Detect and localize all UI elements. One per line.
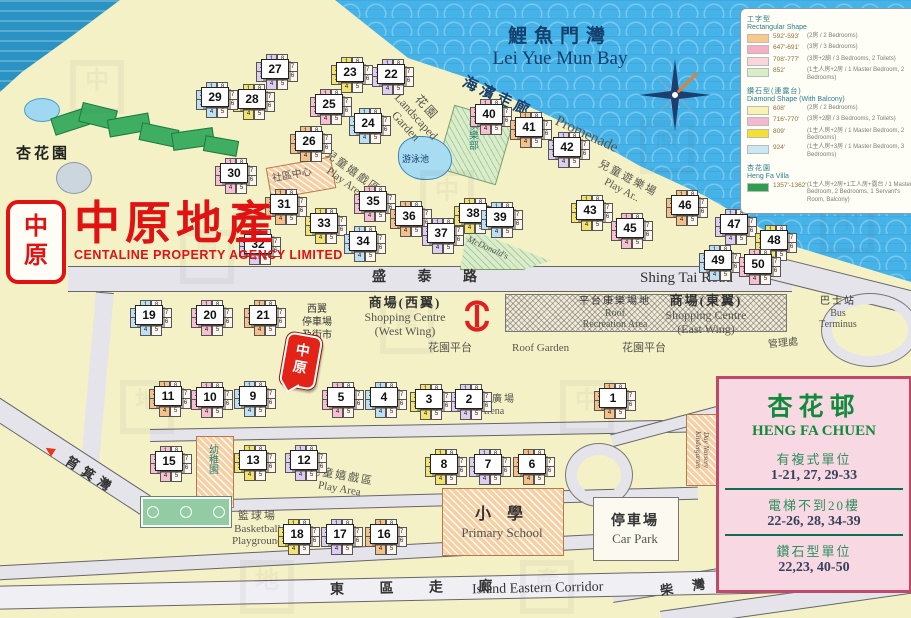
roof-garden-en-label: Roof Garden bbox=[512, 342, 569, 355]
legend-section: 鑽石型(連露台)Diamond Shape (With Balcony)608'… bbox=[747, 86, 911, 159]
tower-number: 10 bbox=[196, 387, 224, 407]
tower-number: 2 bbox=[455, 389, 483, 409]
tower-number: 29 bbox=[201, 87, 229, 107]
tower-unit: 5 bbox=[534, 474, 545, 485]
legend-row: 1357'-1362'(1主人房+2房+1工人房+露台 / 1 Master B… bbox=[747, 182, 911, 205]
bus-terminus-label: 巴士站 Bus Terminus bbox=[808, 296, 868, 331]
tower-number: 41 bbox=[515, 117, 543, 137]
roof-garden-west-label: 花園平台 bbox=[428, 342, 472, 355]
villa-building bbox=[203, 135, 239, 157]
centaline-seal-icon: 中原 bbox=[6, 200, 66, 284]
legend-swatch bbox=[747, 45, 769, 54]
tower-unit: 5 bbox=[431, 409, 442, 420]
tower-number: 1 bbox=[599, 388, 627, 408]
legend-area: 809' bbox=[773, 128, 807, 135]
legend-area: 592'-593' bbox=[773, 33, 807, 40]
info-row: 鑽石型單位22,23, 40-50 bbox=[725, 534, 903, 580]
tower-number: 25 bbox=[315, 94, 343, 114]
tower-unit: 5 bbox=[311, 151, 322, 162]
tower-unit: 4 bbox=[749, 274, 760, 285]
tower-unit: 4 bbox=[400, 226, 411, 237]
tower-unit: 5 bbox=[471, 409, 482, 420]
legend-section-title-en: Diamond Shape (With Balcony) bbox=[747, 96, 911, 103]
legend-swatch bbox=[747, 183, 769, 192]
tower-unit: 4 bbox=[341, 82, 352, 93]
tower-number: 5 bbox=[327, 387, 355, 407]
tower-unit: 4 bbox=[254, 325, 265, 336]
legend-desc: (1主人房+2房 / 1 Master Bedroom, 2 Bedrooms) bbox=[807, 67, 911, 82]
legend-area: 852' bbox=[773, 67, 807, 74]
tower-unit: 5 bbox=[299, 544, 310, 555]
tower-unit: 5 bbox=[254, 109, 265, 120]
tower-unit: 5 bbox=[736, 234, 747, 245]
tower-unit: 4 bbox=[460, 409, 471, 420]
tower-unit: 5 bbox=[306, 470, 317, 481]
tower-unit: 4 bbox=[676, 215, 687, 226]
legend-area: 924' bbox=[773, 144, 807, 151]
shopping-east-label: 商場(東翼) Shopping Centre (East Wing) bbox=[646, 294, 766, 337]
tower-unit: 4 bbox=[320, 114, 331, 125]
villa-label: 杏花園 bbox=[16, 146, 70, 163]
basketball-label: 籃球場 Basketball Playground bbox=[232, 510, 283, 548]
legend-row: 924'(1主人房+3房 / 1 Master Bedroom, 3 Bedro… bbox=[747, 144, 911, 159]
legend-swatch bbox=[747, 57, 769, 66]
tower-number: 12 bbox=[290, 450, 318, 470]
tower-number: 48 bbox=[760, 230, 788, 250]
tower-unit: 4 bbox=[243, 109, 254, 120]
villa-pond-gray bbox=[56, 162, 92, 194]
swimming-pool-label: 游泳池 bbox=[402, 154, 429, 164]
tower-unit: 5 bbox=[265, 325, 276, 336]
tower-number: 21 bbox=[249, 305, 277, 325]
tower-unit: 5 bbox=[217, 107, 228, 118]
tower-unit: 4 bbox=[160, 471, 171, 482]
tower-number: 49 bbox=[704, 250, 732, 270]
tower-unit: 4 bbox=[432, 243, 443, 254]
legend-area: 1357'-1362' bbox=[773, 182, 807, 189]
legend-desc: (1主人房+2房 / 1 Master Bedroom, 2 Bedrooms) bbox=[807, 128, 911, 143]
tower-number: 18 bbox=[283, 524, 311, 544]
info-row-label: 鑽石型單位 bbox=[725, 541, 903, 560]
legend-swatch bbox=[747, 129, 769, 138]
tower-unit: 5 bbox=[277, 79, 288, 90]
tower-unit: 5 bbox=[171, 471, 182, 482]
tower-unit: 4 bbox=[479, 474, 490, 485]
tower-unit: 5 bbox=[375, 211, 386, 222]
tower-unit: 5 bbox=[386, 544, 397, 555]
tower-unit: 5 bbox=[490, 474, 501, 485]
tower-unit: 5 bbox=[592, 220, 603, 231]
tower-number: 30 bbox=[220, 163, 248, 183]
legend-area: 716'-770' bbox=[773, 116, 807, 123]
tower-unit: 4 bbox=[140, 325, 151, 336]
tower-unit: 5 bbox=[343, 407, 354, 418]
tower-unit: 4 bbox=[364, 211, 375, 222]
tower-unit: 4 bbox=[621, 238, 632, 249]
tower-unit: 5 bbox=[370, 133, 381, 144]
management-office-label: 管理處 bbox=[767, 336, 798, 351]
tower-unit: 4 bbox=[201, 407, 212, 418]
tower-unit: 5 bbox=[491, 124, 502, 135]
tower-unit: 5 bbox=[632, 238, 643, 249]
carpark-label: 停車場 Car Park bbox=[599, 512, 671, 549]
tower-unit: 4 bbox=[480, 124, 491, 135]
tower-number: 45 bbox=[616, 218, 644, 238]
tower-number: 13 bbox=[239, 450, 267, 470]
tower-unit: 4 bbox=[382, 84, 393, 95]
tower-unit: 4 bbox=[464, 223, 475, 234]
legend-desc: (3房 / 3 Bedrooms) bbox=[807, 44, 858, 52]
tower-unit: 5 bbox=[342, 544, 353, 555]
tower-unit: 4 bbox=[201, 325, 212, 336]
bay-name-zh: 鯉魚門灣 bbox=[480, 26, 640, 48]
kindergarten-label: 幼稚園 bbox=[206, 444, 218, 474]
legend-row: 708'-777'(3房+2廁 / 3 Bedrooms, 2 Toilets) bbox=[747, 56, 911, 66]
legend-desc: (2房 / 2 Bedrooms) bbox=[807, 33, 858, 41]
tower-unit: 4 bbox=[375, 544, 386, 555]
estate-map: 鯉魚門灣 Lei Yue Mun Bay 海 濱 走 廊 Promenade 盛… bbox=[0, 0, 911, 618]
legend-row: 716'-770'(3房+2廁 / 3 Bedrooms, 2 Toilets) bbox=[747, 116, 911, 126]
legend-area: 647'-691' bbox=[773, 44, 807, 51]
info-row-value: 22,23, 40-50 bbox=[725, 560, 903, 576]
tower-unit: 4 bbox=[359, 133, 370, 144]
shing-tai-road-zh: 盛 泰 路 bbox=[372, 270, 491, 286]
tower-unit: 5 bbox=[255, 470, 266, 481]
legend-section-title-zh: 鑽石型(連露台) bbox=[747, 86, 911, 96]
tower-unit: 4 bbox=[159, 406, 170, 417]
tower-unit: 4 bbox=[523, 474, 534, 485]
tower-unit: 5 bbox=[386, 407, 397, 418]
tower-number: 8 bbox=[430, 454, 458, 474]
tower-unit: 4 bbox=[558, 157, 569, 168]
legend-section: 杏花園Heng Fa Villa1357'-1362'(1主人房+2房+1工人房… bbox=[747, 163, 911, 204]
tower-unit: 5 bbox=[502, 227, 513, 238]
tower-number: 20 bbox=[196, 305, 224, 325]
info-row-label: 有複式單位 bbox=[725, 449, 903, 468]
tower-unit: 4 bbox=[266, 79, 277, 90]
info-row: 有複式單位1-21, 27, 29-33 bbox=[725, 444, 903, 488]
tower-unit: 5 bbox=[212, 407, 223, 418]
tower-number: 11 bbox=[154, 386, 182, 406]
tower-number: 28 bbox=[238, 89, 266, 109]
legend-desc: (3房+2廁 / 3 Bedrooms, 2 Toilets) bbox=[807, 116, 896, 124]
tower-unit: 5 bbox=[352, 82, 363, 93]
tower-number: 50 bbox=[744, 254, 772, 274]
tower-unit: 5 bbox=[151, 325, 162, 336]
legend-row: 852'(1主人房+2房 / 1 Master Bedroom, 2 Bedro… bbox=[747, 67, 911, 82]
tower-unit: 4 bbox=[604, 408, 615, 419]
legend: 工字型Rectangular Shape592'-593'(2房 / 2 Bed… bbox=[740, 8, 911, 214]
tower-number: 46 bbox=[671, 195, 699, 215]
info-row-value: 1-21, 27, 29-33 bbox=[725, 468, 903, 484]
tower-number: 26 bbox=[295, 131, 323, 151]
roof-garden-east-label: 花園平台 bbox=[622, 342, 666, 355]
tower-unit: 5 bbox=[411, 226, 422, 237]
tower-unit: 5 bbox=[760, 274, 771, 285]
tower-number: 40 bbox=[475, 104, 503, 124]
info-row: 電梯不到20樓22-26, 28, 34-39 bbox=[725, 488, 903, 534]
tower-unit: 4 bbox=[244, 470, 255, 481]
tower-unit: 4 bbox=[375, 407, 386, 418]
tower-number: 35 bbox=[359, 191, 387, 211]
tower-unit: 4 bbox=[300, 151, 311, 162]
tower-number: 17 bbox=[326, 524, 354, 544]
tower-unit: 4 bbox=[725, 234, 736, 245]
tower-number: 19 bbox=[135, 305, 163, 325]
tower-unit: 5 bbox=[443, 243, 454, 254]
estate-name-en: HENG FA CHUEN bbox=[725, 423, 903, 440]
tower-unit: 4 bbox=[435, 474, 446, 485]
tower-unit: 5 bbox=[615, 408, 626, 419]
tower-number: 43 bbox=[576, 200, 604, 220]
tower-number: 36 bbox=[395, 206, 423, 226]
legend-row: 592'-593'(2房 / 2 Bedrooms) bbox=[747, 33, 911, 43]
tower-unit: 5 bbox=[720, 270, 731, 281]
tower-unit: 4 bbox=[709, 270, 720, 281]
tower-number: 24 bbox=[354, 113, 382, 133]
nursery-label: Day Nursery Kindergarten bbox=[694, 417, 710, 483]
legend-swatch bbox=[747, 145, 769, 154]
legend-swatch bbox=[747, 68, 769, 77]
tower-unit: 4 bbox=[331, 544, 342, 555]
tower-number: 23 bbox=[336, 62, 364, 82]
legend-section-title-en: Heng Fa Villa bbox=[747, 173, 911, 180]
legend-section-title-zh: 工字型 bbox=[747, 14, 911, 24]
tower-number: 27 bbox=[261, 59, 289, 79]
tower-number: 3 bbox=[415, 389, 443, 409]
basketball-court bbox=[140, 496, 232, 528]
legend-row: 608'(2房 / 2 Bedrooms) bbox=[747, 105, 911, 115]
tower-unit: 5 bbox=[170, 406, 181, 417]
legend-desc: (1主人房+2房+1工人房+露台 / 1 Master Bedroom, 2 B… bbox=[807, 182, 911, 205]
tower-number: 7 bbox=[474, 454, 502, 474]
estate-name-zh: 杏花邨 bbox=[725, 387, 903, 423]
legend-section-title-zh: 杏花園 bbox=[747, 163, 911, 173]
tower-unit: 4 bbox=[295, 470, 306, 481]
tower-unit: 4 bbox=[581, 220, 592, 231]
tower-number: 37 bbox=[427, 223, 455, 243]
legend-section-title-en: Rectangular Shape bbox=[747, 24, 911, 31]
legend-row: 809'(1主人房+2房 / 1 Master Bedroom, 2 Bedro… bbox=[747, 128, 911, 143]
tower-number: 15 bbox=[155, 451, 183, 471]
tower-number: 4 bbox=[370, 387, 398, 407]
tower-unit: 5 bbox=[569, 157, 580, 168]
tower-number: 6 bbox=[518, 454, 546, 474]
tower-unit: 4 bbox=[206, 107, 217, 118]
tower-unit: 5 bbox=[365, 251, 376, 262]
tower-unit: 4 bbox=[244, 406, 255, 417]
tower-number: 39 bbox=[486, 207, 514, 227]
tower-number: 34 bbox=[349, 231, 377, 251]
centaline-brand: 中原 中原地產 CENTALINE PROPERTY AGENCY LIMITE… bbox=[6, 200, 343, 284]
tower-unit: 4 bbox=[491, 227, 502, 238]
legend-swatch bbox=[747, 106, 769, 115]
tower-unit: 4 bbox=[354, 251, 365, 262]
info-row-value: 22-26, 28, 34-39 bbox=[725, 514, 903, 530]
tower-unit: 5 bbox=[212, 325, 223, 336]
tower-number: 47 bbox=[720, 214, 748, 234]
tower-unit: 5 bbox=[531, 137, 542, 148]
tower-unit: 4 bbox=[520, 137, 531, 148]
tower-number: 16 bbox=[370, 524, 398, 544]
legend-area: 708'-777' bbox=[773, 56, 807, 63]
tower-unit: 5 bbox=[687, 215, 698, 226]
tower-number: 22 bbox=[377, 64, 405, 84]
tower-unit: 4 bbox=[420, 409, 431, 420]
tower-unit: 5 bbox=[393, 84, 404, 95]
tower-number: 9 bbox=[239, 386, 267, 406]
tower-unit: 4 bbox=[332, 407, 343, 418]
info-row-label: 電梯不到20樓 bbox=[725, 495, 903, 514]
road-west bbox=[80, 292, 114, 475]
legend-section: 工字型Rectangular Shape592'-593'(2房 / 2 Bed… bbox=[747, 14, 911, 82]
legend-row: 647'-691'(3房 / 3 Bedrooms) bbox=[747, 44, 911, 54]
brand-name-en: CENTALINE PROPERTY AGENCY LIMITED bbox=[74, 248, 343, 262]
legend-desc: (1主人房+3房 / 1 Master Bedroom, 3 Bedrooms) bbox=[807, 144, 911, 159]
bay-name-en: Lei Yue Mun Bay bbox=[470, 48, 650, 70]
legend-desc: (2房 / 2 Bedrooms) bbox=[807, 105, 858, 113]
brand-name-zh: 中原地產 bbox=[74, 200, 343, 248]
tower-unit: 5 bbox=[255, 406, 266, 417]
legend-swatch bbox=[747, 34, 769, 43]
tower-unit: 4 bbox=[225, 183, 236, 194]
tower-number: 42 bbox=[553, 137, 581, 157]
legend-desc: (3房+2廁 / 3 Bedrooms, 2 Toilets) bbox=[807, 56, 896, 64]
centaline-map-pin: 中 原 bbox=[279, 331, 324, 390]
estate-info-box: 杏花邨 HENG FA CHUEN 有複式單位1-21, 27, 29-33電梯… bbox=[716, 376, 911, 593]
primary-school-label: 小 學 Primary School bbox=[452, 506, 552, 543]
legend-area: 608' bbox=[773, 105, 807, 112]
legend-swatch bbox=[747, 117, 769, 126]
tower-unit: 5 bbox=[446, 474, 457, 485]
tower-unit: 5 bbox=[236, 183, 247, 194]
tower-unit: 4 bbox=[288, 544, 299, 555]
tower-unit: 5 bbox=[331, 114, 342, 125]
